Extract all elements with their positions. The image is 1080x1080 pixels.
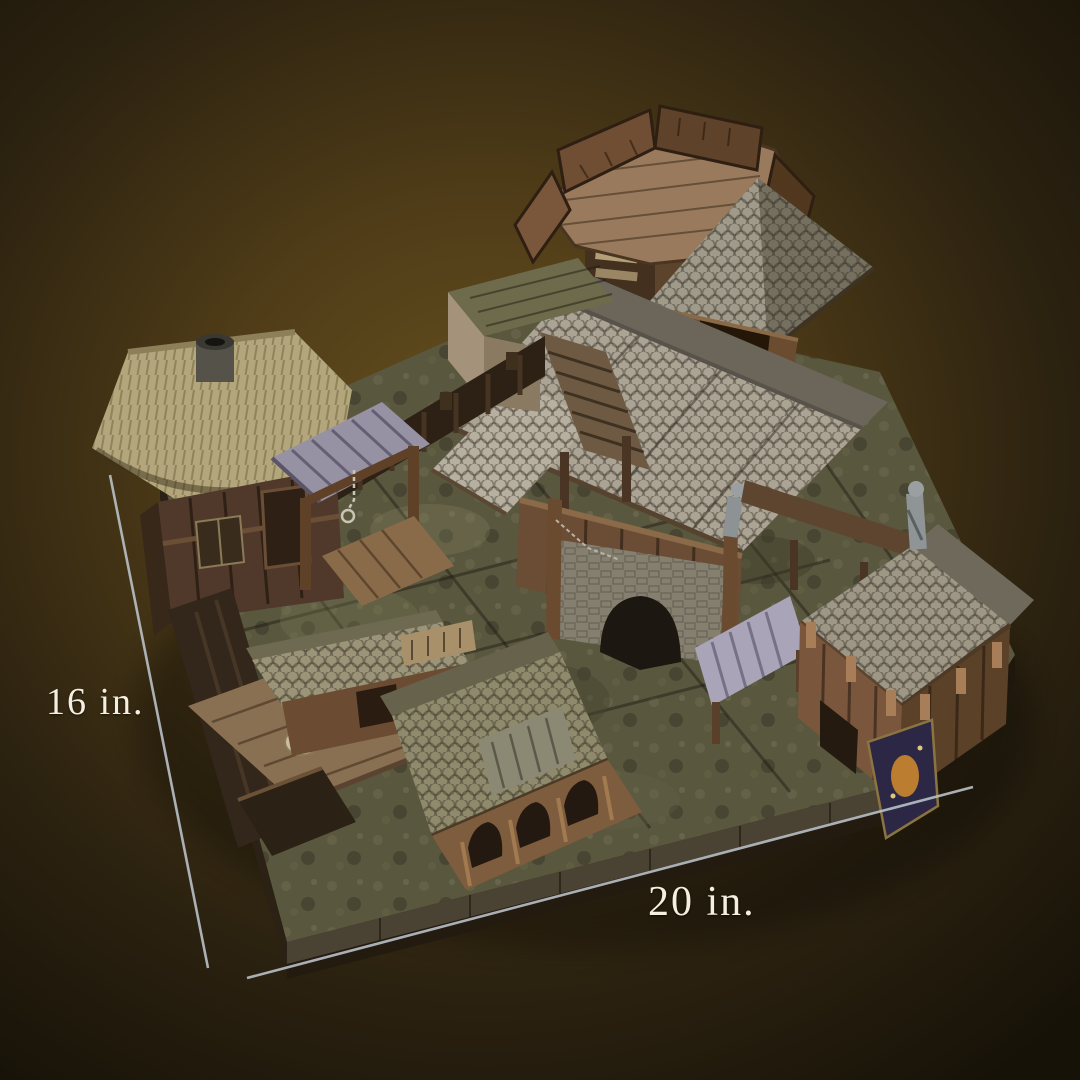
product-photo-stage: 16 in. 20 in.: [0, 0, 1080, 1080]
terrain-model-illustration: [0, 0, 1080, 1080]
width-dimension-label: 20 in.: [648, 878, 756, 926]
height-dimension-label: 16 in.: [46, 680, 145, 724]
